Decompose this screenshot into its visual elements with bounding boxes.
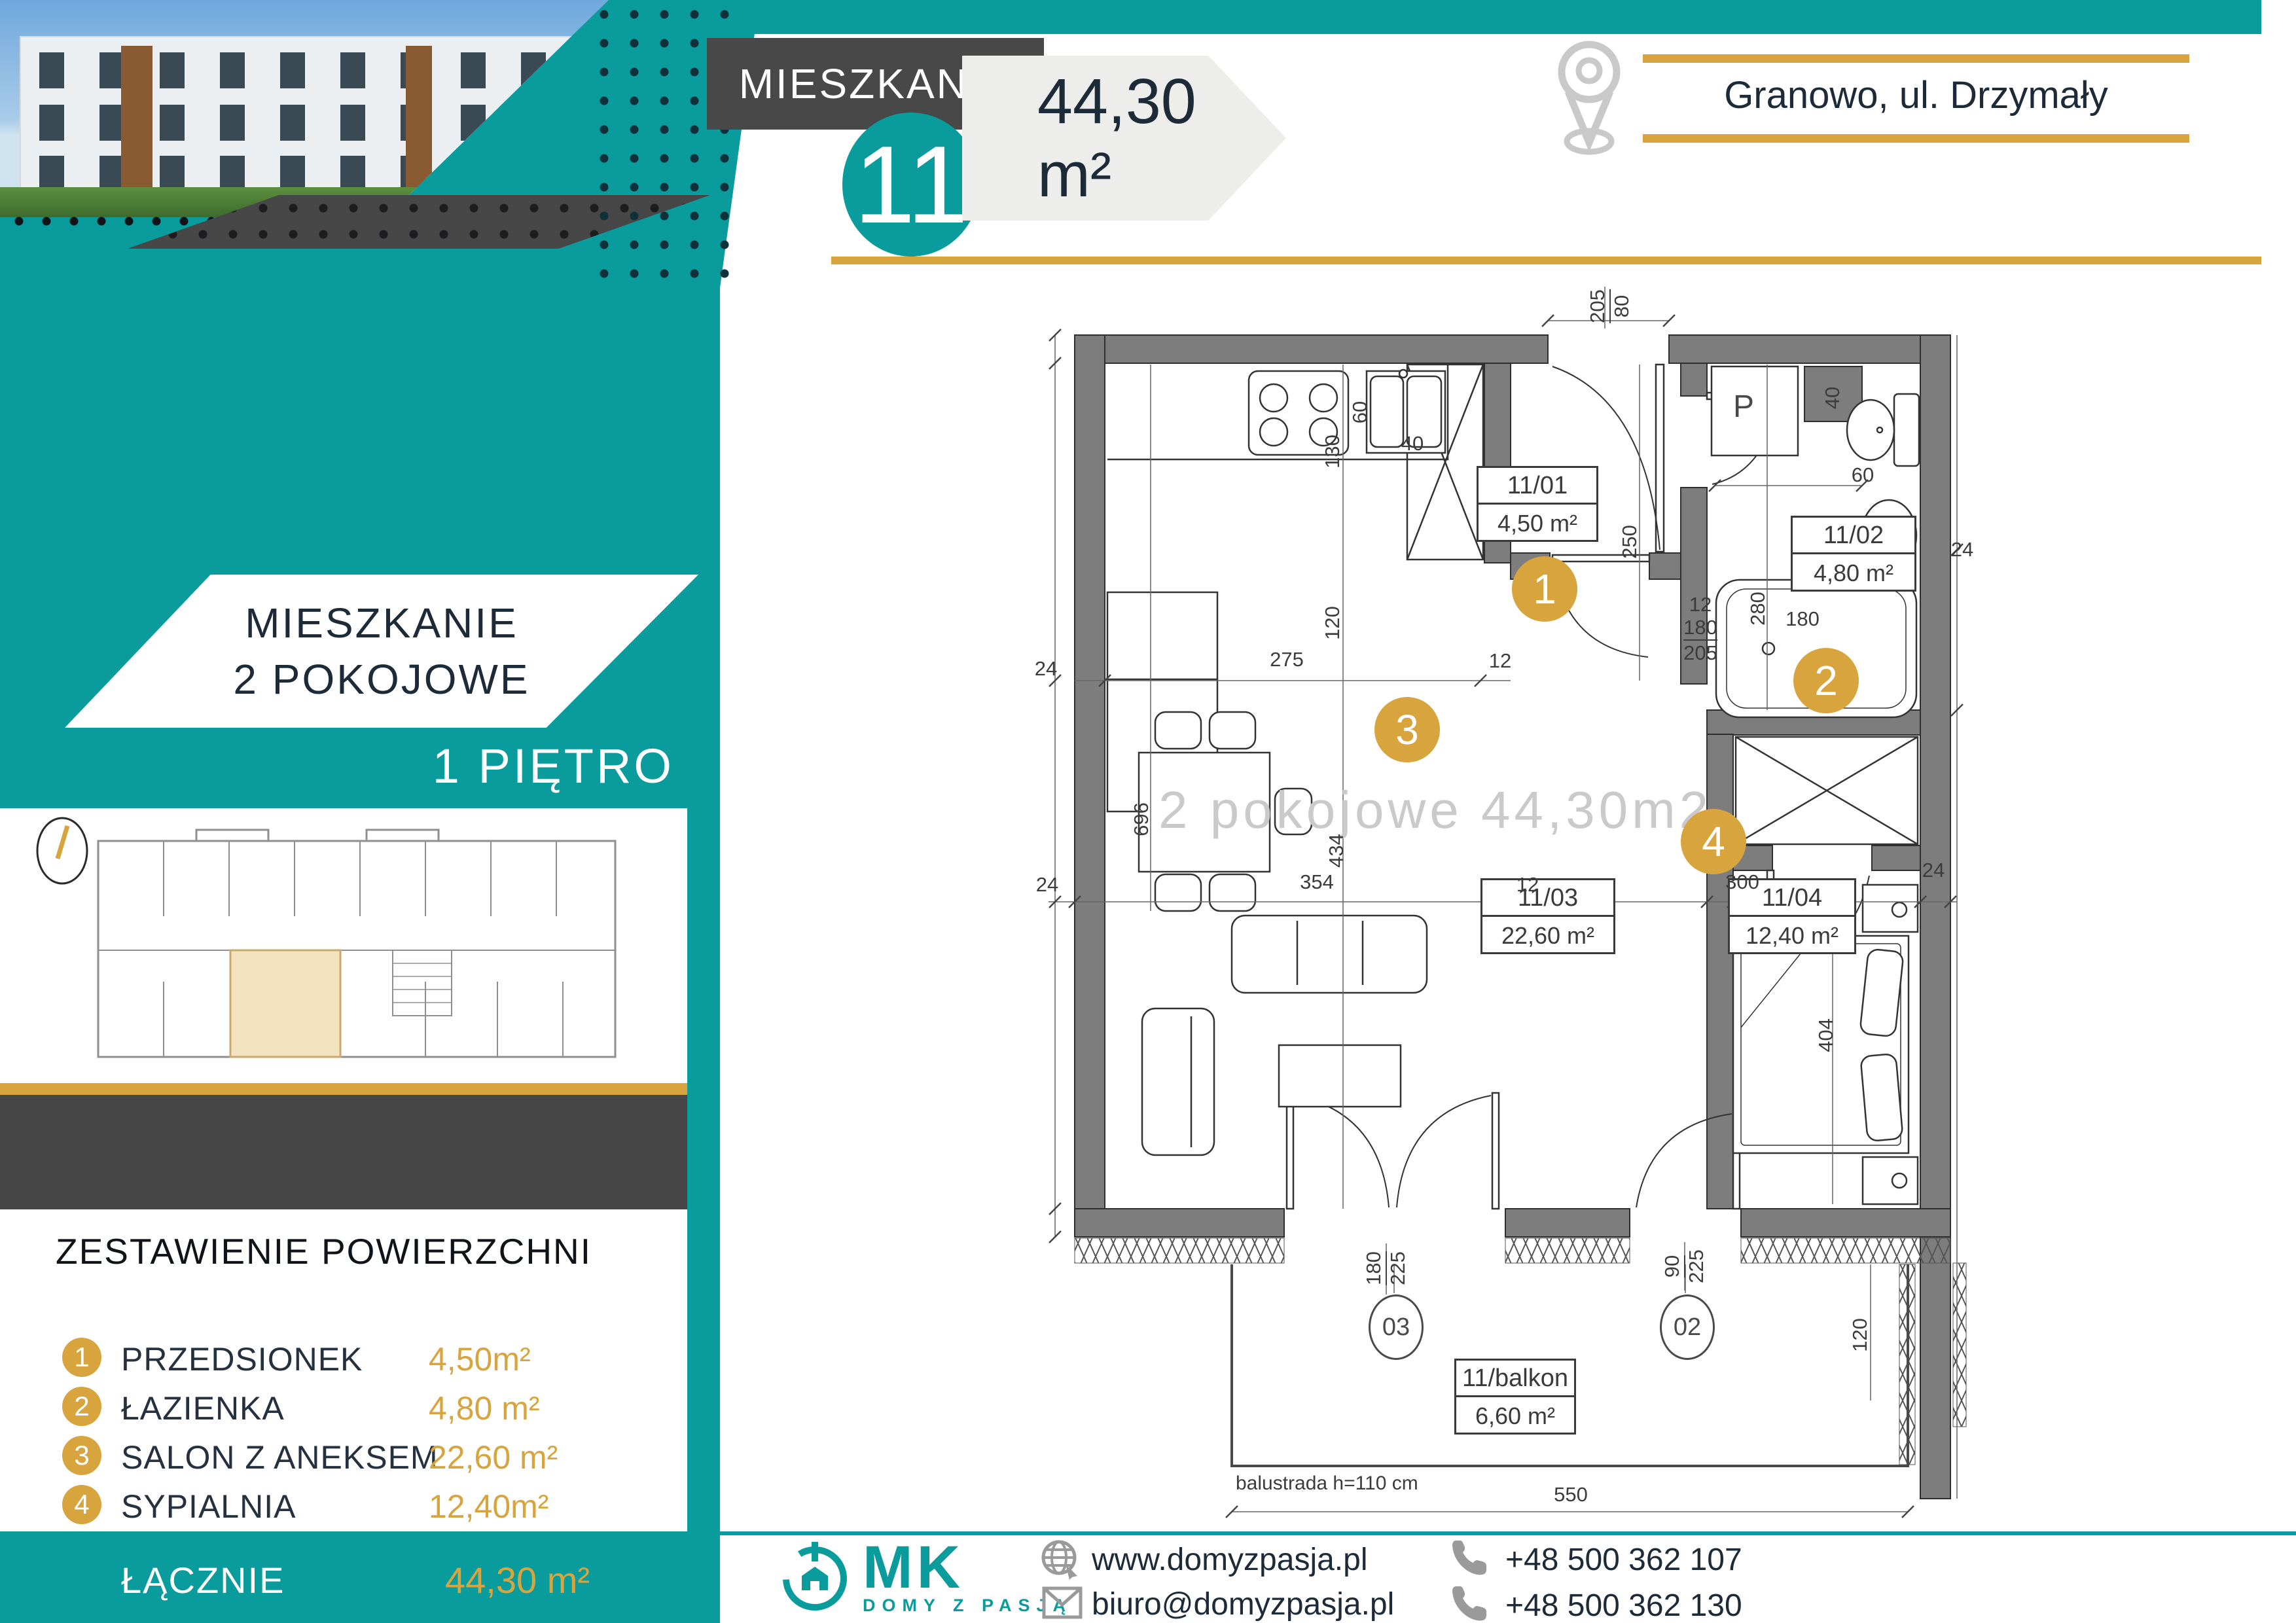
brand-tagline: DOMY Z PASJĄ — [863, 1596, 1072, 1616]
phone-icon — [1450, 1584, 1489, 1623]
dim-label: 280 — [1746, 592, 1770, 626]
dim-label: 180 — [1785, 607, 1820, 631]
dim-label: 550 — [1554, 1483, 1588, 1507]
dim-label: 250 — [1618, 525, 1641, 559]
dim-label: 404 — [1814, 1018, 1838, 1052]
dim-label: 696 — [1130, 802, 1153, 836]
dim-label: 354 — [1300, 870, 1334, 894]
phone-icon — [1450, 1538, 1489, 1577]
dim-label: 24 — [1922, 859, 1945, 882]
dim-label: 275 — [1270, 648, 1304, 671]
dim-label: 80 — [1610, 295, 1634, 317]
globe-icon — [1039, 1539, 1083, 1580]
dim-label: 40 — [1401, 432, 1424, 455]
plan-dimension-labels: 2058040606013040275121202425028012180205… — [0, 0, 2296, 1623]
dim-label: 24 — [1951, 538, 1973, 562]
phone-number-2: +48 500 362 130 — [1505, 1588, 1742, 1623]
dim-label: 12 — [1516, 873, 1539, 897]
envelope-icon — [1042, 1586, 1083, 1619]
dim-label: 300 — [1725, 870, 1759, 894]
mk-emblem-icon — [779, 1539, 851, 1613]
dim-label: 180 — [1683, 616, 1717, 641]
brand-logo: MK DOMY Z PASJĄ — [779, 1539, 1072, 1618]
dim-label: 40 — [1821, 387, 1844, 409]
dim-label: 120 — [1848, 1318, 1872, 1352]
dim-label: 90 — [1660, 1255, 1685, 1277]
dim-label: 180 — [1362, 1251, 1387, 1285]
dim-label: 205 — [1683, 641, 1717, 665]
dim-label: 24 — [1035, 657, 1057, 681]
dim-label: 12 — [1489, 649, 1511, 673]
email-link: biuro@domyzpasja.pl — [1092, 1586, 1394, 1622]
dim-label: 205 — [1586, 289, 1611, 323]
dim-label: 12 — [1689, 593, 1712, 616]
dim-label: 225 — [1685, 1249, 1708, 1283]
dim-label: 130 — [1321, 435, 1344, 469]
dim-label: 60 — [1852, 463, 1874, 487]
dim-label: 24 — [1036, 873, 1058, 897]
dim-label: 60 — [1348, 401, 1372, 423]
website-link: www.domyzpasja.pl — [1092, 1542, 1368, 1578]
dim-label: 120 — [1321, 606, 1344, 640]
dim-label: 434 — [1325, 834, 1348, 868]
phone-number-1: +48 500 362 107 — [1505, 1542, 1742, 1578]
flyer-page: MIESZKANIE 11 44,30 m² Granowo, ul. Drzy… — [0, 0, 2296, 1623]
dim-label: 225 — [1386, 1251, 1410, 1285]
